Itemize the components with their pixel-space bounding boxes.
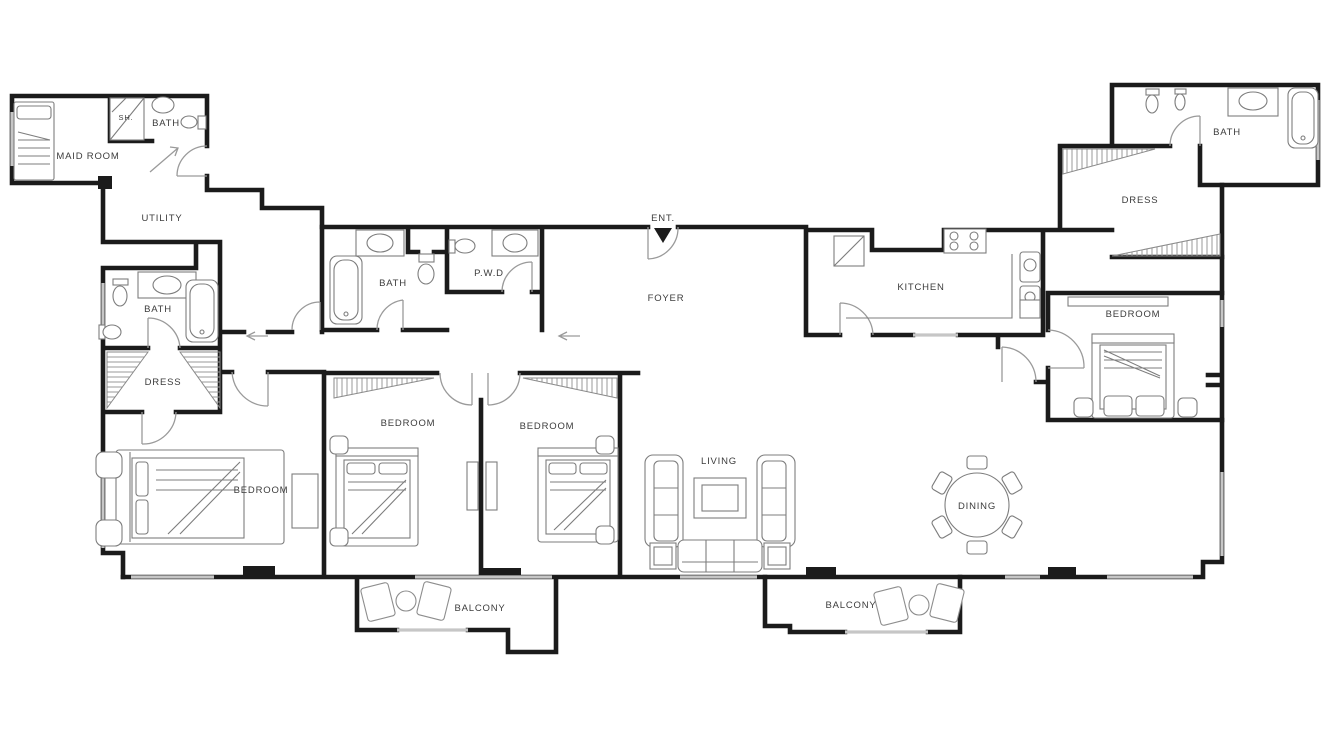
sink-icon (492, 230, 538, 256)
entrance-arrow-icon (654, 228, 672, 243)
dresser-icon (486, 462, 497, 510)
room-label-bath-left: BATH (144, 304, 172, 315)
dresser-icon (467, 462, 478, 510)
room-label-maid-room: MAID ROOM (56, 151, 119, 162)
floor-plan-drawing: MAID ROOM SH. BATH UTILITY BATH DRESS BA… (0, 0, 1326, 741)
bidet-icon (99, 325, 121, 339)
wardrobe-icon (180, 352, 220, 408)
sink-icon (1228, 88, 1278, 116)
floor-plan: MAID ROOM SH. BATH UTILITY BATH DRESS BA… (0, 0, 1326, 741)
tv-console (1068, 297, 1168, 306)
room-label-entrance: ENT. (651, 213, 675, 224)
room-label-bedroom-2: BEDROOM (381, 418, 436, 429)
side-table-icon (764, 543, 790, 569)
bed-icon (14, 102, 54, 180)
toilet-icon (418, 254, 434, 284)
room-label-utility: UTILITY (142, 213, 183, 224)
room-label-kitchen: KITCHEN (897, 282, 944, 293)
balcony-furniture (360, 581, 451, 622)
bed-icon (330, 436, 418, 546)
furniture (14, 88, 1318, 626)
bed-icon (96, 450, 318, 546)
stove-icon (944, 229, 986, 253)
toilet-icon (113, 279, 128, 306)
wardrobe-icon (1063, 149, 1155, 174)
room-label-bedroom-3: BEDROOM (520, 421, 575, 432)
sink-icon (356, 230, 404, 256)
wardrobe-icon (1112, 234, 1220, 256)
room-label-bedroom-right: BEDROOM (1106, 309, 1161, 320)
room-label-balcony-right: BALCONY (825, 600, 876, 611)
room-label-living: LIVING (701, 456, 737, 467)
wardrobe-icon (334, 378, 434, 398)
toilet-icon (449, 239, 475, 253)
bathtub-icon (186, 280, 218, 342)
room-label-foyer: FOYER (648, 293, 685, 304)
bathtub-icon (330, 256, 362, 324)
toilet-icon (1146, 89, 1159, 113)
wardrobe-icon (523, 378, 617, 398)
room-label-bath-center: BATH (379, 278, 407, 289)
bidet-icon (1175, 89, 1186, 110)
room-label-bedroom-master: BEDROOM (234, 485, 289, 496)
sink-icon (152, 97, 174, 113)
kitchen-sink-icon (1020, 252, 1040, 318)
coffee-table-icon (694, 478, 746, 518)
bed-icon (1074, 334, 1197, 418)
balcony-furniture (873, 583, 964, 626)
room-label-bath-right: BATH (1213, 127, 1241, 138)
room-label-powder-room: P.W.D (474, 268, 504, 279)
room-label-dress-left: DRESS (145, 377, 182, 388)
ottoman-icon (292, 474, 318, 528)
bed-icon (538, 436, 618, 544)
wardrobe-icon (107, 352, 148, 408)
bathtub-icon (1288, 88, 1318, 148)
side-table-icon (650, 543, 676, 569)
sofa-icon (678, 540, 762, 572)
room-label-shower: SH. (119, 113, 134, 122)
sofa-icon (757, 455, 795, 547)
room-label-dress-right: DRESS (1122, 195, 1159, 206)
sofa-icon (645, 455, 683, 547)
toilet-icon (181, 116, 206, 129)
room-label-balcony-left: BALCONY (454, 603, 505, 614)
room-label-maid-bath: BATH (152, 118, 180, 129)
room-label-dining: DINING (958, 501, 996, 512)
fridge-icon (834, 236, 864, 266)
